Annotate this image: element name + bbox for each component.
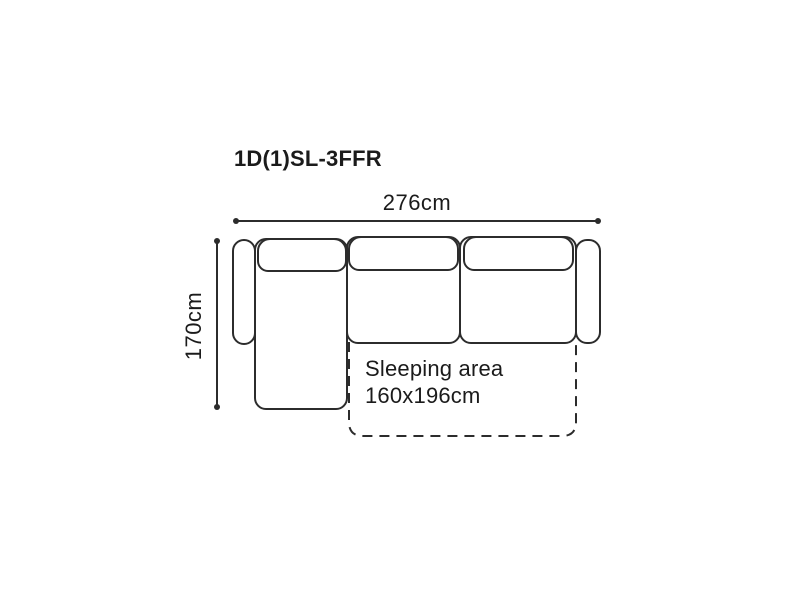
sofa-dimension-diagram: 1D(1)SL-3FFR 276cm 170cm Sleeping area 1…	[0, 0, 800, 600]
depth-dimension-line	[216, 241, 218, 407]
sleeping-area-label-line1: Sleeping area	[365, 355, 503, 382]
sleeping-area-label: Sleeping area 160x196cm	[365, 355, 503, 409]
product-code-title: 1D(1)SL-3FFR	[234, 146, 382, 172]
width-dimension-line	[236, 220, 598, 222]
backrest-cushion-right	[463, 236, 574, 271]
dimension-endpoint-dot	[595, 218, 601, 224]
depth-dimension-value: 170cm	[181, 292, 207, 361]
right-armrest-shape	[575, 239, 601, 344]
left-armrest-shape	[232, 239, 256, 345]
backrest-cushion-middle	[348, 236, 459, 271]
backrest-cushion-left	[257, 238, 347, 272]
width-dimension-value: 276cm	[236, 190, 598, 216]
dimension-endpoint-dot	[214, 404, 220, 410]
dimension-endpoint-dot	[214, 238, 220, 244]
sleeping-area-label-line2: 160x196cm	[365, 382, 503, 409]
dimension-endpoint-dot	[233, 218, 239, 224]
